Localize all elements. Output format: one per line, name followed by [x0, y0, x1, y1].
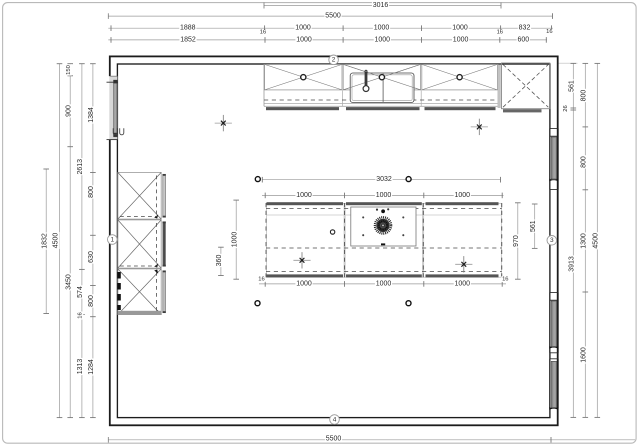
svg-text:1000: 1000	[295, 25, 311, 32]
svg-text:5500: 5500	[325, 13, 341, 20]
svg-text:1384: 1384	[88, 107, 95, 123]
svg-text:1000: 1000	[296, 192, 312, 199]
svg-text:600: 600	[517, 36, 529, 43]
svg-text:630: 630	[88, 251, 95, 263]
svg-text:900: 900	[65, 105, 72, 117]
svg-text:1000: 1000	[296, 280, 312, 287]
svg-text:800: 800	[88, 295, 95, 307]
svg-text:4: 4	[333, 416, 337, 423]
svg-text:1000: 1000	[453, 36, 469, 43]
svg-text:3016: 3016	[373, 2, 389, 9]
svg-text:1000: 1000	[452, 25, 468, 32]
svg-text:1000: 1000	[376, 280, 392, 287]
svg-text:1300: 1300	[580, 233, 587, 249]
svg-text:16: 16	[258, 276, 264, 282]
svg-text:1284: 1284	[88, 359, 95, 375]
svg-text:1: 1	[110, 236, 114, 243]
svg-text:3032: 3032	[376, 176, 392, 183]
svg-text:574: 574	[77, 286, 84, 298]
svg-text:561: 561	[530, 220, 537, 232]
svg-text:1000: 1000	[455, 280, 471, 287]
svg-text:1000: 1000	[296, 36, 312, 43]
svg-text:3: 3	[550, 237, 554, 244]
svg-text:3913: 3913	[568, 256, 575, 272]
svg-text:1000: 1000	[455, 192, 471, 199]
svg-text:16: 16	[78, 312, 84, 318]
svg-text:150: 150	[66, 65, 72, 75]
svg-text:800: 800	[580, 90, 587, 102]
svg-text:16: 16	[546, 29, 552, 35]
svg-text:1000: 1000	[231, 232, 238, 248]
svg-text:1000: 1000	[375, 36, 391, 43]
svg-text:16: 16	[260, 30, 266, 36]
svg-text:2613: 2613	[77, 159, 84, 175]
svg-text:1000: 1000	[376, 192, 392, 199]
svg-text:1832: 1832	[41, 233, 48, 249]
svg-text:561: 561	[568, 80, 575, 92]
svg-text:16: 16	[497, 30, 503, 36]
svg-text:4500: 4500	[53, 233, 60, 249]
svg-text:1852: 1852	[180, 36, 196, 43]
svg-text:1600: 1600	[580, 347, 587, 363]
svg-text:970: 970	[513, 235, 520, 247]
svg-text:4500: 4500	[592, 233, 599, 249]
svg-text:16: 16	[502, 276, 508, 282]
svg-text:800: 800	[580, 156, 587, 168]
svg-text:5500: 5500	[326, 436, 342, 443]
svg-text:1888: 1888	[180, 25, 196, 32]
svg-text:1313: 1313	[77, 359, 84, 375]
svg-text:360: 360	[216, 255, 223, 267]
svg-text:1000: 1000	[374, 25, 390, 32]
svg-text:2: 2	[332, 57, 336, 64]
svg-text:832: 832	[519, 25, 531, 32]
svg-text:3450: 3450	[65, 274, 72, 290]
svg-text:800: 800	[88, 186, 95, 198]
svg-text:26: 26	[563, 105, 569, 111]
